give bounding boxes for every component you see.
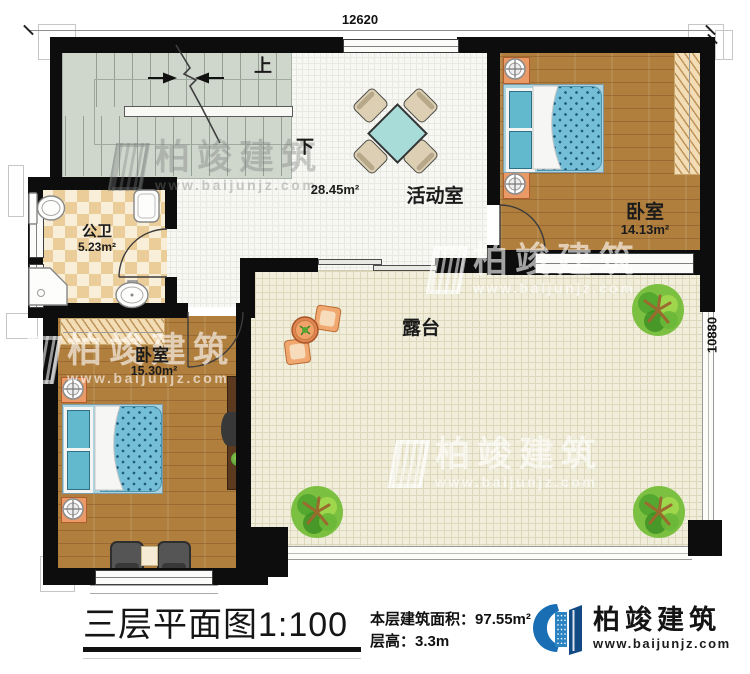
window	[535, 253, 694, 274]
bed-pillow	[67, 410, 90, 449]
wall	[487, 245, 500, 275]
stairs-up-label: 上	[254, 57, 272, 77]
brand-logo-icon	[531, 599, 587, 657]
wall	[165, 177, 177, 229]
exterior-ledge	[8, 165, 24, 217]
desk-chair	[221, 412, 237, 446]
floor-height-label: 层高：	[370, 633, 415, 650]
wall	[487, 45, 500, 205]
bed-pillow	[67, 451, 90, 490]
bed-blanket	[537, 86, 602, 171]
brand-block: 柏竣建筑 www.baijunjz.com	[531, 599, 731, 657]
room-label-bathroom: 公卫	[82, 224, 112, 241]
floor-height-value: 3.3m	[415, 633, 449, 650]
wardrobe	[674, 50, 703, 175]
terrace-corner-column	[688, 520, 722, 556]
terrace-chair	[284, 338, 312, 366]
title-underline-thin	[83, 658, 361, 659]
floor-height-line: 层高：3.3m	[370, 631, 531, 653]
wall	[435, 258, 490, 273]
floor-info: 本层建筑面积：97.55m² 层高：3.3m	[370, 609, 531, 653]
nightstand	[61, 377, 87, 403]
wall	[50, 37, 62, 177]
bed-pillow	[509, 131, 532, 169]
side-table	[141, 546, 158, 566]
room-label-bedroom-bottom: 卧室	[135, 347, 169, 366]
window	[95, 570, 213, 585]
exterior-ledge	[715, 30, 733, 60]
brand-name: 柏竣建筑	[593, 605, 731, 636]
window	[29, 264, 44, 308]
wall	[28, 177, 177, 190]
sliding-door	[318, 258, 435, 271]
floor-plan: 12620 10880	[0, 0, 750, 674]
floor-area-value: 97.55m²	[475, 611, 531, 628]
floor-area-line: 本层建筑面积：97.55m²	[370, 609, 531, 631]
dimension-right-label: 10880	[705, 317, 720, 353]
brand-url: www.baijunjz.com	[593, 636, 731, 651]
terrace-floor	[240, 270, 707, 550]
terrace-chair	[313, 304, 342, 333]
room-label-activity: 活动室	[406, 187, 463, 208]
nightstand	[61, 497, 87, 523]
wardrobe	[60, 318, 165, 345]
room-area-activity: 28.45m²	[311, 183, 359, 197]
wall	[243, 258, 318, 272]
wall	[236, 303, 251, 535]
wall	[236, 527, 288, 577]
room-label-bedroom-top: 卧室	[626, 203, 664, 224]
title-underline	[83, 647, 361, 652]
nightstand	[503, 172, 530, 199]
window	[343, 39, 459, 53]
dimension-line-top	[30, 30, 712, 31]
window	[29, 210, 44, 258]
stair-handrail	[124, 106, 293, 117]
drawing-scale: 1:100	[258, 606, 348, 644]
drawing-title-text: 三层平面图	[83, 606, 258, 644]
stairs-down-label: 下	[296, 138, 314, 158]
nightstand	[503, 57, 530, 84]
bed	[62, 404, 163, 494]
dimension-top-label: 12620	[342, 12, 378, 27]
floor-area-label: 本层建筑面积：	[370, 611, 475, 628]
room-label-terrace: 露台	[402, 319, 440, 340]
bed-pillow	[509, 91, 532, 129]
wall	[50, 37, 343, 53]
bed	[503, 84, 604, 173]
window-sill	[90, 585, 218, 594]
room-area-bedroom-bottom: 15.30m²	[131, 365, 178, 379]
room-area-bathroom: 5.23m²	[78, 241, 116, 254]
terrace-railing-bottom	[255, 546, 692, 560]
drawing-title: 三层平面图1:100	[83, 597, 348, 646]
room-area-bedroom-top: 14.13m²	[621, 223, 669, 237]
bed-blanket	[100, 406, 162, 492]
wall	[43, 307, 58, 585]
